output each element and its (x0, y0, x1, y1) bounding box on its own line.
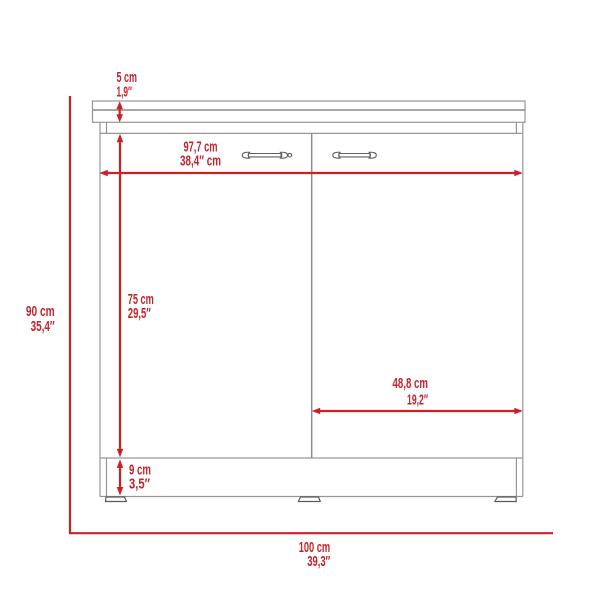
svg-text:35,4″: 35,4″ (31, 318, 55, 335)
svg-text:19,2″: 19,2″ (407, 392, 428, 409)
svg-text:48,8 cm: 48,8 cm (393, 375, 429, 392)
svg-text:3,5″: 3,5″ (129, 476, 150, 493)
svg-text:29,5″: 29,5″ (128, 305, 151, 322)
svg-text:38,4″ cm: 38,4″ cm (180, 152, 221, 169)
svg-text:1,9″: 1,9″ (117, 84, 133, 101)
svg-text:39,3″: 39,3″ (307, 553, 330, 570)
